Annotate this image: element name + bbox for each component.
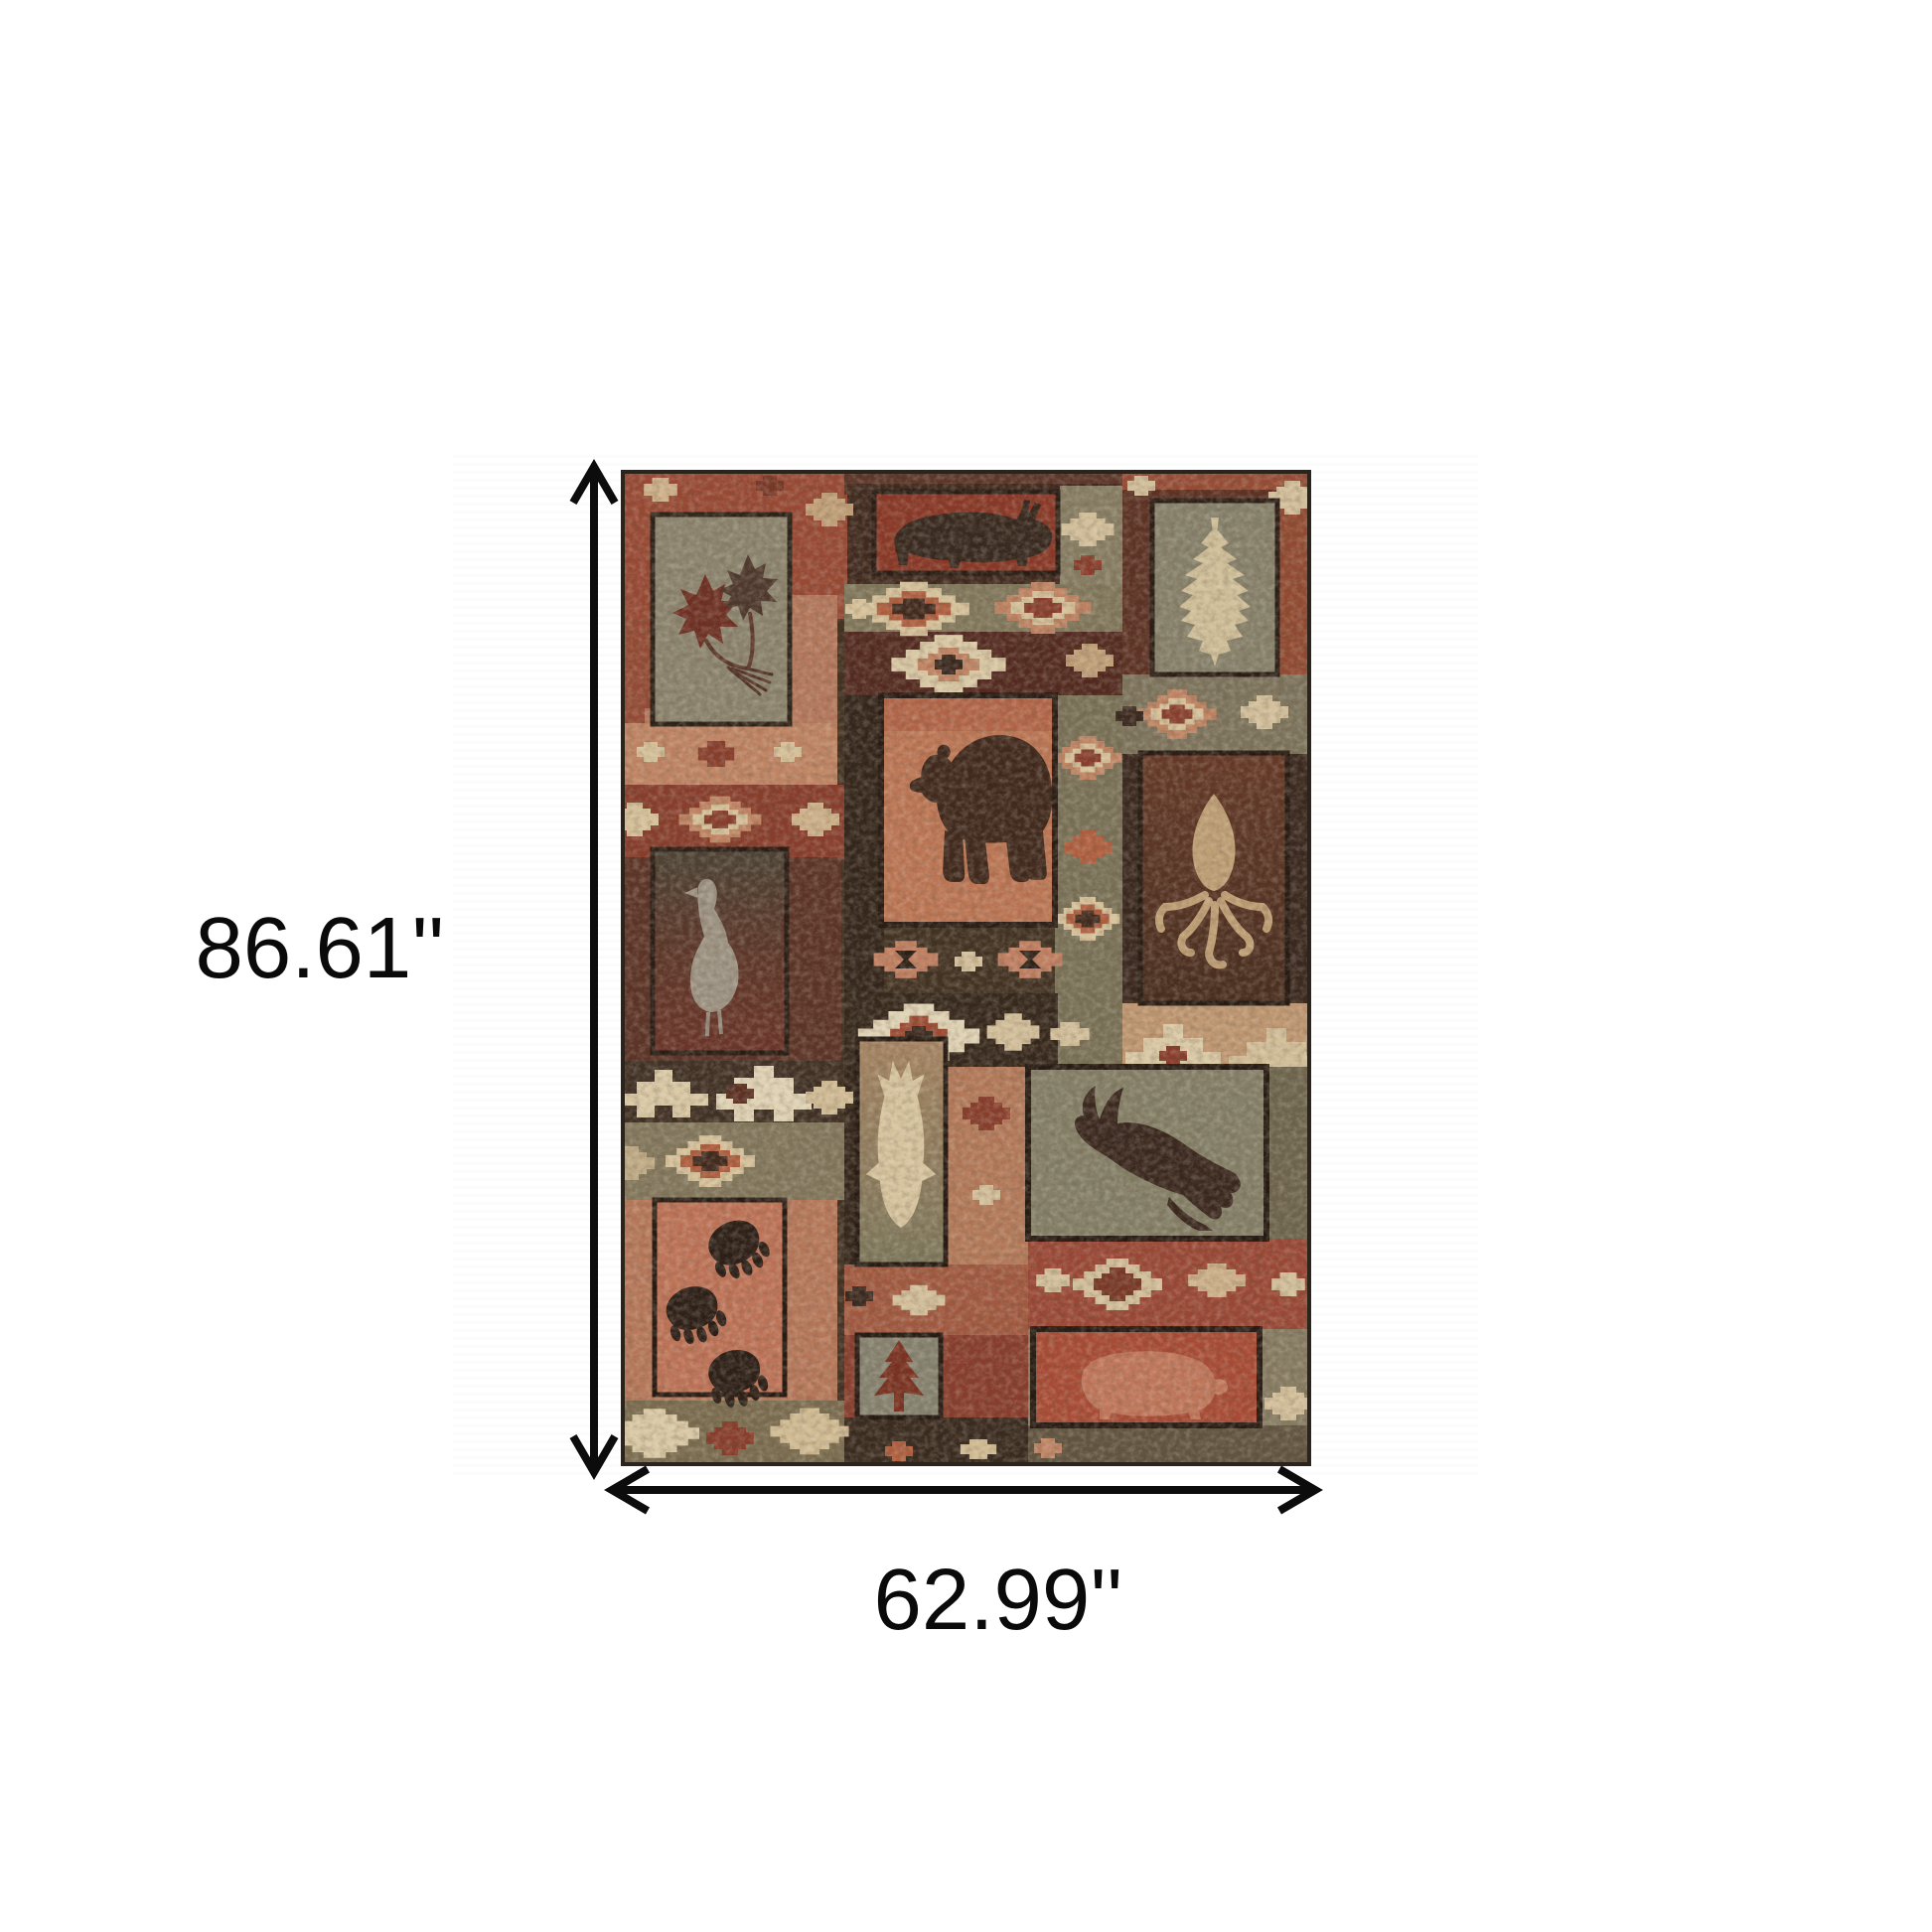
svg-text:62.99'': 62.99'' (874, 1552, 1123, 1648)
svg-text:86.61'': 86.61'' (196, 900, 445, 996)
